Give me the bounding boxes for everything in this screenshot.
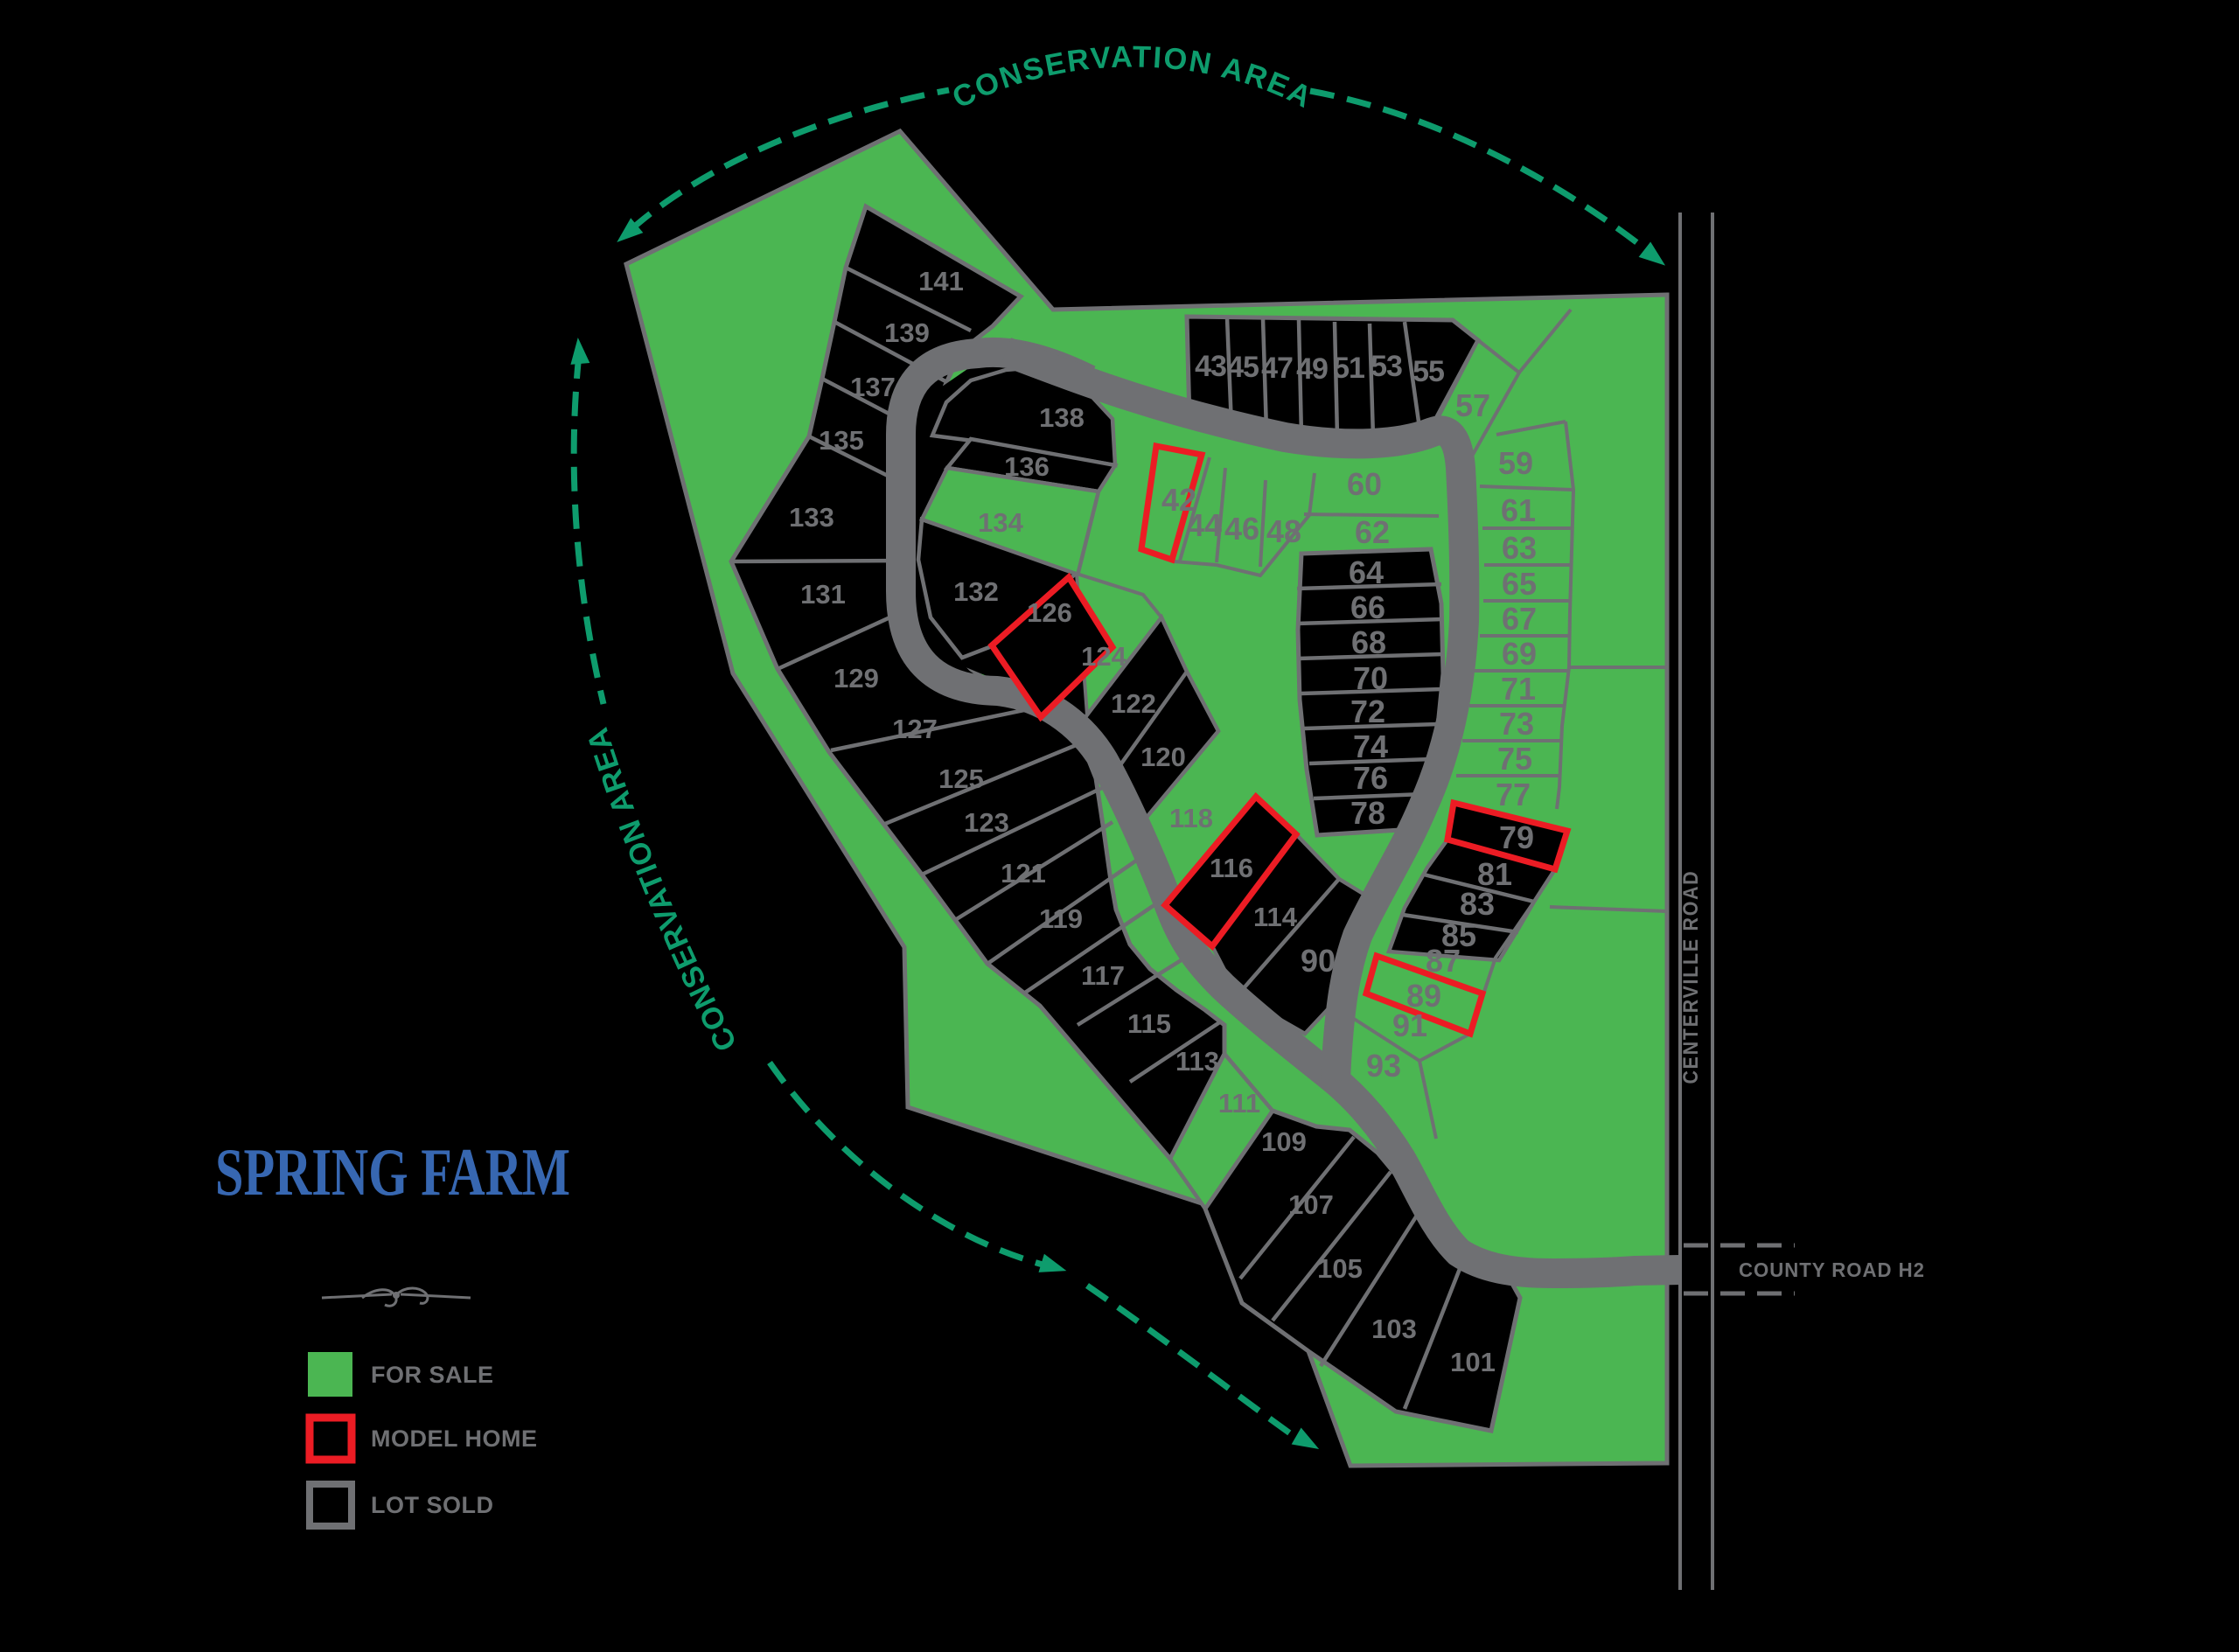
svg-text:65: 65 bbox=[1502, 566, 1537, 602]
svg-text:COUNTY ROAD H2: COUNTY ROAD H2 bbox=[1739, 1258, 1925, 1281]
svg-text:113: 113 bbox=[1175, 1046, 1219, 1077]
svg-text:75: 75 bbox=[1497, 741, 1532, 777]
svg-text:79: 79 bbox=[1499, 819, 1534, 855]
svg-text:47: 47 bbox=[1261, 352, 1293, 385]
svg-text:129: 129 bbox=[834, 663, 879, 694]
svg-text:67: 67 bbox=[1502, 601, 1537, 637]
svg-text:87: 87 bbox=[1426, 943, 1461, 979]
svg-text:115: 115 bbox=[1127, 1008, 1171, 1039]
svg-text:63: 63 bbox=[1502, 530, 1537, 566]
svg-text:125: 125 bbox=[938, 763, 984, 794]
svg-text:70: 70 bbox=[1353, 660, 1388, 696]
svg-text:120: 120 bbox=[1140, 742, 1186, 772]
svg-text:46: 46 bbox=[1224, 511, 1259, 547]
svg-text:122: 122 bbox=[1111, 688, 1156, 719]
svg-text:90: 90 bbox=[1301, 943, 1336, 979]
svg-text:118: 118 bbox=[1169, 803, 1213, 833]
svg-text:49: 49 bbox=[1296, 352, 1328, 386]
svg-text:78: 78 bbox=[1350, 795, 1385, 831]
svg-text:103: 103 bbox=[1371, 1314, 1417, 1344]
svg-text:74: 74 bbox=[1353, 728, 1388, 764]
svg-text:59: 59 bbox=[1498, 445, 1533, 481]
svg-text:43: 43 bbox=[1195, 350, 1226, 383]
svg-text:LOT SOLD: LOT SOLD bbox=[371, 1492, 494, 1518]
svg-text:61: 61 bbox=[1501, 492, 1536, 528]
svg-text:132: 132 bbox=[953, 576, 999, 607]
svg-text:60: 60 bbox=[1347, 466, 1382, 502]
svg-text:53: 53 bbox=[1371, 350, 1402, 383]
svg-text:139: 139 bbox=[884, 317, 930, 348]
svg-text:SPRING FARM: SPRING FARM bbox=[215, 1134, 570, 1209]
svg-text:57: 57 bbox=[1455, 387, 1490, 423]
svg-text:69: 69 bbox=[1502, 636, 1537, 672]
svg-text:124: 124 bbox=[1081, 641, 1126, 672]
svg-text:126: 126 bbox=[1027, 597, 1072, 628]
svg-text:133: 133 bbox=[789, 502, 834, 533]
svg-text:66: 66 bbox=[1350, 589, 1385, 625]
svg-text:72: 72 bbox=[1350, 694, 1385, 729]
svg-text:44: 44 bbox=[1187, 507, 1222, 543]
svg-text:101: 101 bbox=[1450, 1347, 1496, 1377]
svg-text:119: 119 bbox=[1039, 903, 1083, 934]
svg-text:116: 116 bbox=[1210, 853, 1253, 883]
svg-text:135: 135 bbox=[819, 425, 864, 456]
svg-text:FOR SALE: FOR SALE bbox=[371, 1362, 494, 1388]
svg-text:121: 121 bbox=[1001, 858, 1046, 889]
svg-text:117: 117 bbox=[1081, 960, 1125, 991]
svg-text:138: 138 bbox=[1039, 402, 1085, 433]
svg-text:55: 55 bbox=[1412, 355, 1444, 388]
svg-text:83: 83 bbox=[1460, 886, 1495, 922]
svg-text:114: 114 bbox=[1253, 902, 1298, 932]
svg-text:62: 62 bbox=[1355, 514, 1390, 550]
svg-text:64: 64 bbox=[1349, 554, 1384, 590]
svg-text:MODEL HOME: MODEL HOME bbox=[371, 1425, 538, 1452]
svg-text:105: 105 bbox=[1317, 1253, 1363, 1284]
svg-text:123: 123 bbox=[964, 807, 1009, 838]
svg-text:127: 127 bbox=[892, 714, 938, 744]
svg-text:111: 111 bbox=[1218, 1088, 1260, 1119]
svg-text:91: 91 bbox=[1392, 1007, 1427, 1043]
svg-text:136: 136 bbox=[1004, 451, 1050, 482]
svg-text:77: 77 bbox=[1496, 777, 1531, 812]
svg-text:76: 76 bbox=[1353, 760, 1388, 796]
svg-text:141: 141 bbox=[918, 266, 964, 296]
svg-text:134: 134 bbox=[978, 507, 1023, 538]
svg-text:68: 68 bbox=[1351, 624, 1386, 660]
svg-text:137: 137 bbox=[850, 372, 896, 402]
svg-text:93: 93 bbox=[1366, 1048, 1401, 1084]
svg-text:73: 73 bbox=[1499, 706, 1534, 742]
svg-text:48: 48 bbox=[1266, 513, 1301, 549]
svg-text:45: 45 bbox=[1227, 351, 1259, 384]
svg-text:51: 51 bbox=[1333, 352, 1364, 385]
svg-text:131: 131 bbox=[800, 579, 846, 610]
svg-text:107: 107 bbox=[1288, 1189, 1334, 1220]
svg-text:71: 71 bbox=[1501, 671, 1536, 707]
svg-text:CENTERVILLE ROAD: CENTERVILLE ROAD bbox=[1679, 870, 1703, 1084]
svg-text:109: 109 bbox=[1261, 1126, 1307, 1157]
